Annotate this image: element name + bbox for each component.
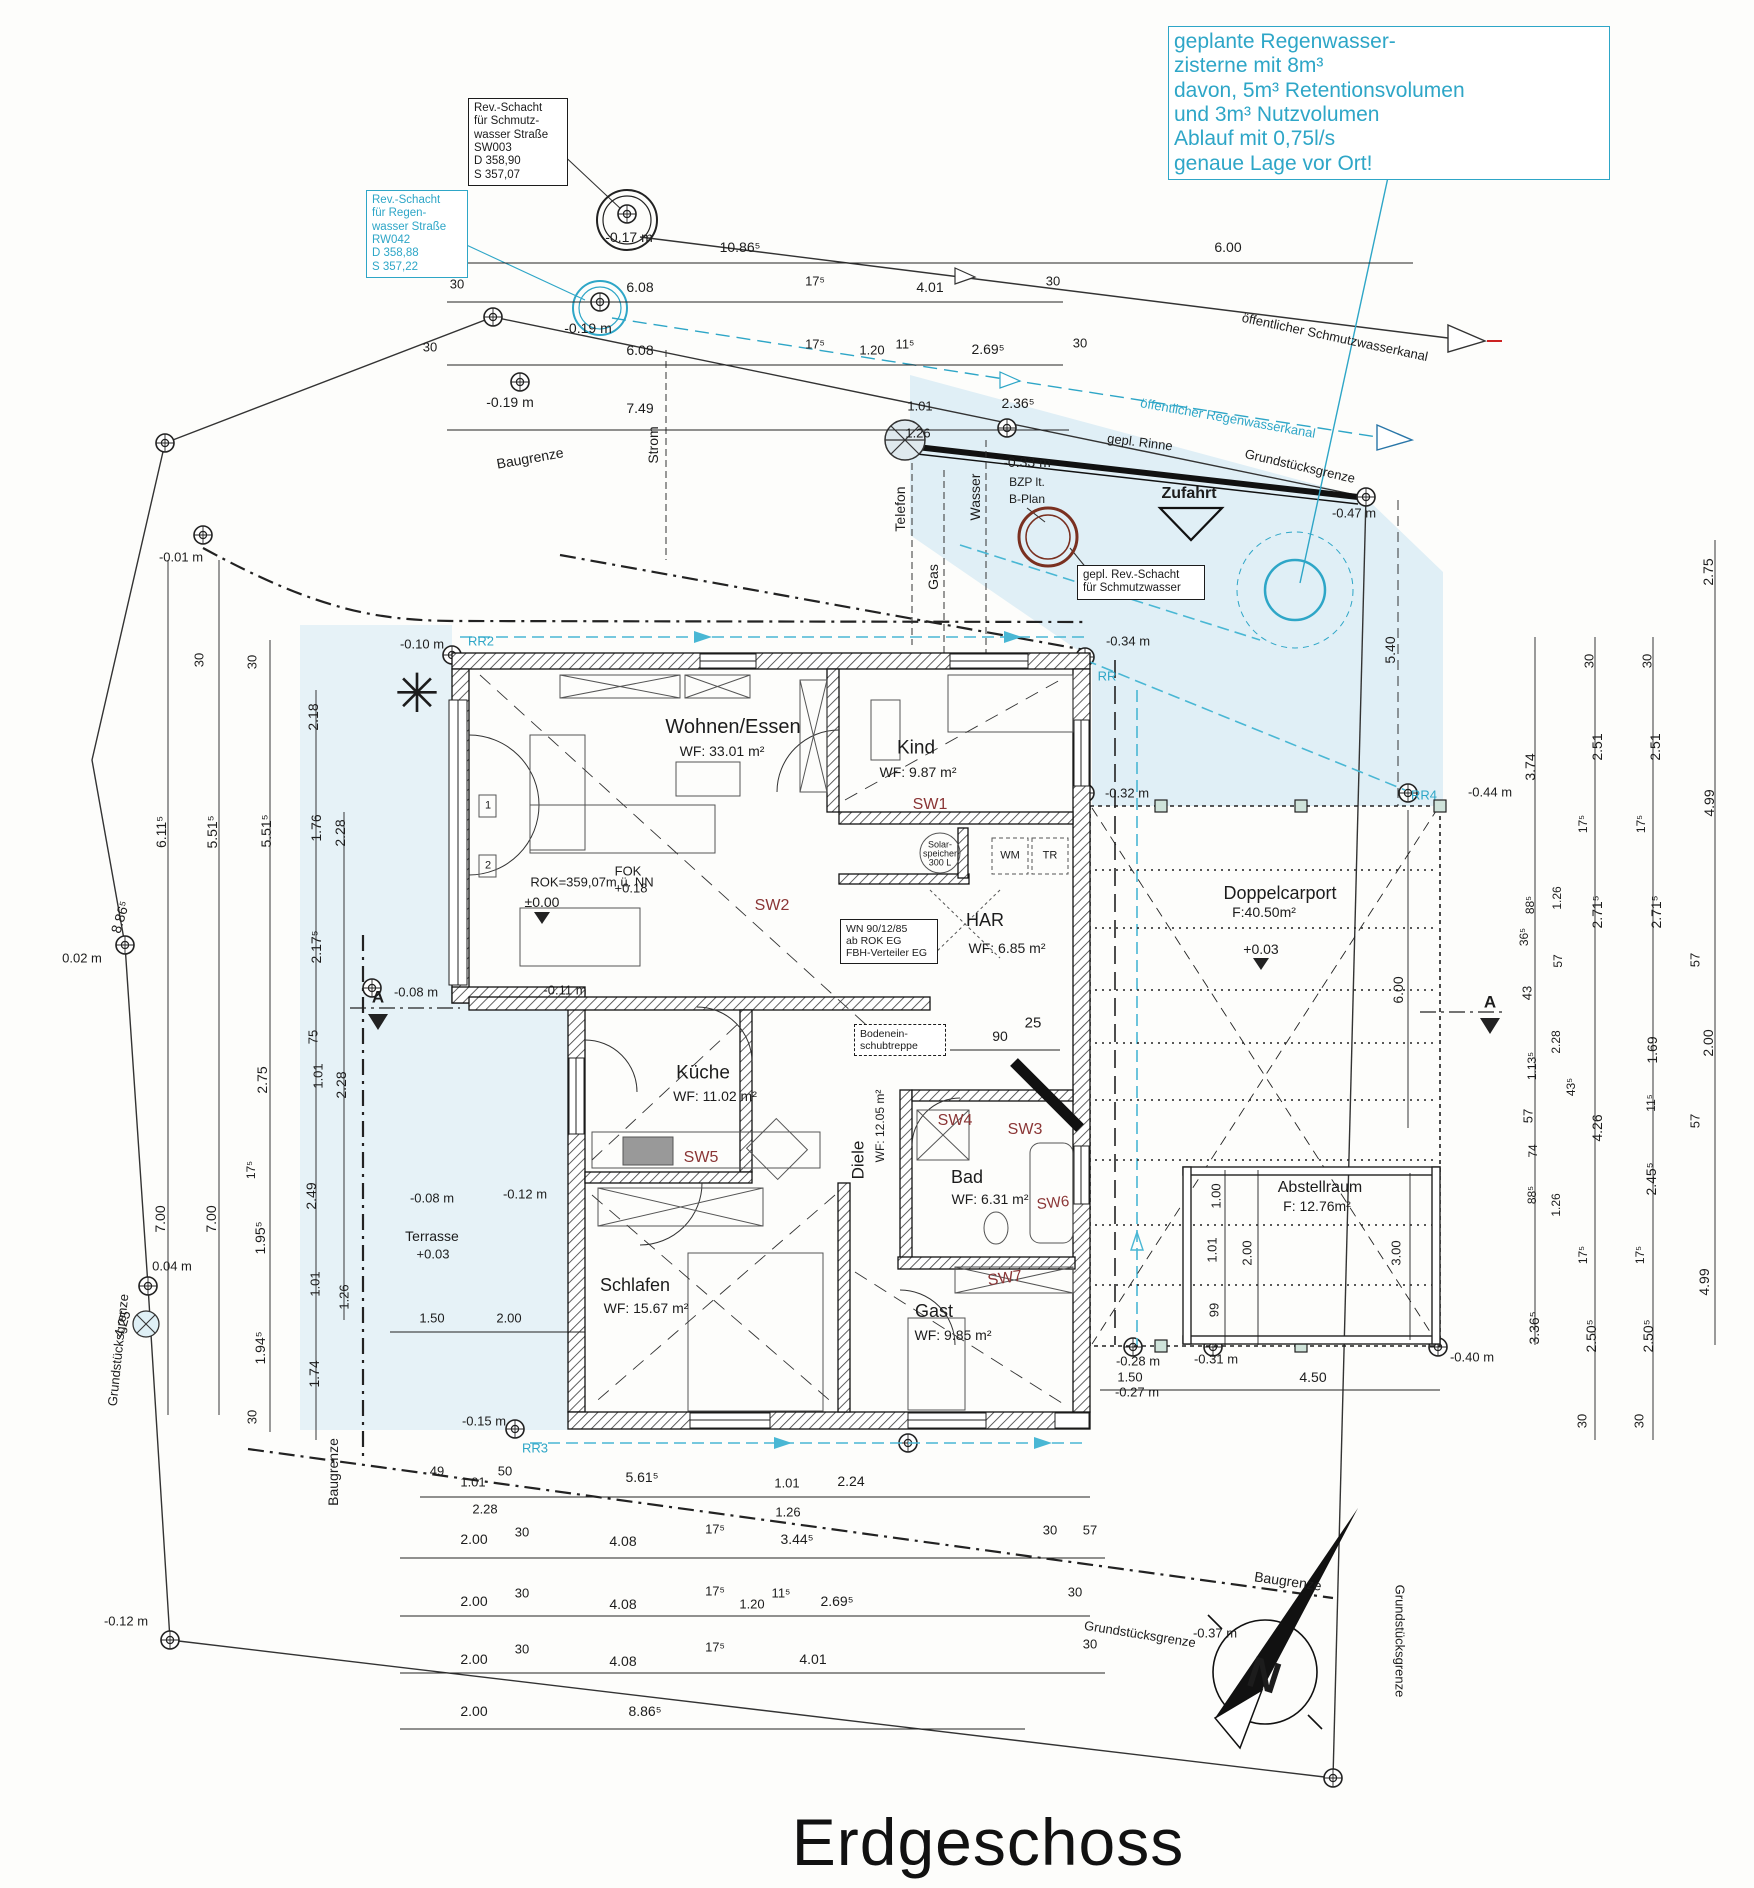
annotation: 30 xyxy=(515,1643,529,1656)
annotation: 2.69⁵ xyxy=(971,342,1004,356)
sw5: SW5 xyxy=(684,1150,719,1166)
annotation: -0.08 m xyxy=(394,986,438,999)
annotation: 2.24 xyxy=(837,1474,864,1488)
annotation: 2.28 xyxy=(333,819,347,846)
annotation: 8.86⁵ xyxy=(628,1704,661,1718)
text-box-line: ab ROK EG xyxy=(846,935,932,947)
regenwasserkanal-label: öffentlicher Regenwasserkanal xyxy=(1139,396,1316,440)
north-letter: N xyxy=(1242,1650,1286,1702)
sw3: SW3 xyxy=(1008,1122,1043,1138)
annotation: -0.11 m xyxy=(543,984,586,997)
annotation: 17⁵ xyxy=(705,1585,725,1598)
annotation: 4.01 xyxy=(799,1652,826,1666)
annotation: 2.49 xyxy=(304,1182,318,1209)
annotation: 30 xyxy=(1073,337,1087,350)
annotation: -0.44 m xyxy=(1468,786,1512,799)
annotation: 1.01 xyxy=(312,1063,325,1088)
shaft-box-schmutzwasser: Rev.-Schachtfür Schmutz-wasser StraßeSW0… xyxy=(468,98,568,186)
text-box-line: Ablauf mit 0,75l/s xyxy=(1174,127,1604,151)
annotation: 5.51⁵ xyxy=(259,814,273,847)
annotation: 17⁵ xyxy=(1577,815,1589,833)
text-box-line: für Regen- xyxy=(372,207,462,220)
text-box-line: RW042 xyxy=(372,234,462,247)
rr4-label: RR4 xyxy=(1411,789,1437,802)
annotation: 30 xyxy=(246,1410,259,1424)
rr3-label: RR3 xyxy=(522,1442,548,1455)
grenze-east: Grundstücksgrenze xyxy=(1394,1585,1407,1698)
baugrenze-west: Baugrenze xyxy=(326,1438,340,1506)
text-box-line: Rev.-Schacht xyxy=(474,102,562,115)
annotation: 74 xyxy=(1527,1144,1539,1157)
annotation: 17⁵ xyxy=(1635,815,1647,833)
annotation: 30 xyxy=(193,653,206,667)
rr-label: RR xyxy=(1098,670,1117,683)
drawing-title: Erdgeschoss xyxy=(792,1804,1185,1880)
room-name-kind: Kind xyxy=(897,739,935,758)
annotation: 6.08 xyxy=(626,280,653,294)
zufahrt-label: Zufahrt xyxy=(1161,486,1216,502)
annotation: -0.08 m xyxy=(410,1192,454,1205)
text-box-line: für Schmutzwasser xyxy=(1083,582,1199,595)
text-box-line: Rev.-Schacht xyxy=(372,194,462,207)
shaft-box-regenwasser: Rev.-Schachtfür Regen-wasser StraßeRW042… xyxy=(366,190,468,278)
annotation: -0.15 m xyxy=(462,1415,506,1428)
annotation: 2.00 xyxy=(496,1312,521,1325)
annotation: 17⁵ xyxy=(805,275,825,288)
annotation: 7.00 xyxy=(153,1205,167,1232)
room-area-wohnen-essen: WF: 33.01 m² xyxy=(680,744,765,758)
text-box-line: für Schmutz- xyxy=(474,115,562,128)
level-019b: -0.19 m xyxy=(486,395,533,409)
annotation: 11⁵ xyxy=(772,1587,791,1600)
level-004: 0.04 m xyxy=(152,1260,192,1273)
annotation: -0.31 m xyxy=(1194,1353,1238,1366)
room-area-abstellraum: F: 12.76m² xyxy=(1283,1199,1351,1213)
annotation: 2.71⁵ xyxy=(1590,895,1604,928)
annotation: BZP lt. xyxy=(1009,476,1045,488)
annotation: 11⁵ xyxy=(896,338,915,351)
level-017: -0.17 m xyxy=(605,230,652,244)
room-name-kueche: Küche xyxy=(676,1064,730,1083)
annotation: 88⁵ xyxy=(1526,1186,1538,1204)
annotation: 30 xyxy=(1633,1414,1646,1428)
annotation: 49 xyxy=(430,1465,444,1478)
annotation: 1.50 xyxy=(419,1312,444,1325)
annotation: 17⁵ xyxy=(705,1641,725,1654)
plant-symbol: ✳ xyxy=(394,667,439,721)
annotation: 50 xyxy=(498,1465,512,1478)
annotation: 57 xyxy=(1522,1109,1535,1123)
annotation: B-Plan xyxy=(1009,493,1045,505)
annotation: 2.51 xyxy=(1590,733,1604,760)
room-area-bad: WF: 6.31 m² xyxy=(951,1192,1028,1206)
annotation: 4.08 xyxy=(609,1597,636,1611)
annotation: 30 xyxy=(1576,1414,1589,1428)
annotation: 1.26 xyxy=(338,1284,351,1309)
annotation: 1.01 xyxy=(1206,1237,1219,1262)
text-box-line: schubtreppe xyxy=(860,1040,940,1052)
annotation: 2.00 xyxy=(1701,1029,1715,1056)
annotation: 300 L xyxy=(929,859,952,868)
sw4: SW4 xyxy=(938,1113,973,1129)
annotation: 1.01 xyxy=(309,1271,322,1296)
annotation: 2.50⁵ xyxy=(1641,1319,1655,1352)
room-area-kind: WF: 9.87 m² xyxy=(879,765,956,779)
annotation: -0.10 m xyxy=(400,638,444,651)
annotation: 57 xyxy=(1689,1114,1702,1128)
annotation: 4.50 xyxy=(1299,1370,1326,1384)
text-box-line: geplante Regenwasser- xyxy=(1174,30,1604,54)
annotation: 5.40 xyxy=(1383,636,1397,663)
annotation: 2.00 xyxy=(460,1594,487,1608)
room-name-diele: Diele xyxy=(850,1141,867,1180)
annotation: 30 xyxy=(1046,275,1060,288)
annotation: 4.01 xyxy=(916,280,943,294)
annotation: 2.36⁵ xyxy=(1001,396,1034,410)
text-box-line: SW003 xyxy=(474,142,562,155)
annotation: -0.40 m xyxy=(1450,1351,1494,1364)
baugrenze-bottom: Baugrenze xyxy=(1253,1569,1322,1592)
room-area-terrasse: +0.03 xyxy=(417,1248,450,1261)
annotation: 30 xyxy=(1583,654,1596,668)
annotation: 2.28 xyxy=(334,1071,348,1098)
utility-telefon: Telefon xyxy=(893,486,907,531)
annotation: -0.34 m xyxy=(1106,635,1150,648)
annotation: 4.26 xyxy=(1590,1114,1604,1141)
annotation: 25 xyxy=(1025,1016,1042,1031)
annotation: 1.01 xyxy=(907,400,932,413)
text-box-line: S 357,07 xyxy=(474,169,562,182)
annotation: 30 xyxy=(515,1526,529,1539)
annotation: 30 xyxy=(1068,1586,1082,1599)
annotation: 99 xyxy=(1208,1303,1221,1317)
annotation: 2.69⁵ xyxy=(820,1594,853,1608)
annotation: 3.44⁵ xyxy=(780,1532,813,1546)
annotation: 1.26 xyxy=(775,1506,800,1519)
annotation: 2.45⁵ xyxy=(1644,1162,1658,1195)
level-019a: -0.19 m xyxy=(564,321,611,335)
annotation: 17⁵ xyxy=(1577,1246,1589,1264)
annotation: +0.03 xyxy=(1243,942,1278,956)
annotation: 1 xyxy=(485,801,491,812)
fbh-verteiler-box: WN 90/12/85ab ROK EGFBH-Verteiler EG xyxy=(840,919,938,964)
annotation: 30 xyxy=(450,278,464,291)
annotation: 1.50 xyxy=(1117,1371,1142,1384)
annotation: 1.01 xyxy=(460,1476,485,1489)
text-box-line: Bodenein- xyxy=(860,1028,940,1040)
utility-wasser: Wasser xyxy=(968,474,982,521)
sw2: SW2 xyxy=(755,898,790,914)
annotation: 3.00 xyxy=(1390,1240,1403,1265)
annotation: 75 xyxy=(307,1030,320,1044)
annotation: 57 xyxy=(1552,954,1564,967)
room-area-har: WF: 6.85 m² xyxy=(968,941,1045,955)
annotation: 4.99 xyxy=(1697,1268,1711,1295)
annotation: 1.20 xyxy=(739,1598,764,1611)
annotation: 2.00 xyxy=(1241,1240,1254,1265)
regenwasser-note-box: geplante Regenwasser-zisterne mit 8m³dav… xyxy=(1168,26,1610,180)
annotation: 1.00 xyxy=(1210,1183,1223,1208)
annotation: 1.76 xyxy=(309,814,323,841)
floor-plan-sheet: -0.17 m-0.19 m-0.19 m-0.01 m0.02 m0.04 m… xyxy=(0,0,1754,1888)
annotation: 1.26 xyxy=(1550,1193,1562,1216)
text-box-line: D 358,90 xyxy=(474,155,562,168)
annotation: 2.51 xyxy=(1648,733,1662,760)
text-box-line: wasser Straße xyxy=(372,221,462,234)
annotation: 1.69 xyxy=(1645,1036,1659,1063)
annotation: TR xyxy=(1043,851,1058,862)
room-name-terrasse: Terrasse xyxy=(405,1229,459,1243)
annotation: 88⁵ xyxy=(1524,896,1536,914)
annotation: 8.86⁵ xyxy=(108,899,131,935)
annotation: 2.28 xyxy=(472,1503,497,1516)
annotation: -0.32 m xyxy=(1105,787,1149,800)
annotation: 2 xyxy=(485,861,491,872)
utility-strom: Strom xyxy=(646,426,660,463)
annotation: 2.75 xyxy=(1701,558,1715,585)
level-001: -0.01 m xyxy=(159,551,203,564)
annotation: -0.47 m xyxy=(1332,507,1376,520)
annotation: -0.27 m xyxy=(1115,1386,1159,1399)
text-box-line: davon, 5m³ Retentionsvolumen xyxy=(1174,79,1604,103)
room-area-diele: WF: 12.05 m² xyxy=(874,1090,886,1163)
annotation: 2.00 xyxy=(460,1532,487,1546)
level-033: -0.33 m xyxy=(1003,455,1050,469)
room-area-gast: WF: 9.85 m² xyxy=(914,1328,991,1342)
level-012a: -0.12 m xyxy=(104,1615,148,1628)
annotation: 43⁵ xyxy=(1565,1078,1577,1096)
room-name-wohnen-essen: Wohnen/Essen xyxy=(665,717,800,737)
gepl-schacht-box: gepl. Rev.-Schachtfür Schmutzwasser xyxy=(1077,565,1205,600)
annotation: 1.94⁵ xyxy=(253,1331,267,1364)
annotation: 4.08 xyxy=(609,1654,636,1668)
annotation: 30 xyxy=(423,341,437,354)
text-box-line: S 357,22 xyxy=(372,261,462,274)
annotation: 3.36⁵ xyxy=(1527,1311,1541,1344)
annotation: 2.50⁵ xyxy=(1584,1319,1598,1352)
baugrenze-top: Baugrenze xyxy=(495,445,564,471)
grenze-bottom: Grundstücksgrenze xyxy=(1083,1619,1196,1649)
annotation: 17⁵ xyxy=(1634,1246,1646,1264)
sw1: SW1 xyxy=(913,797,948,813)
annotation: 90 xyxy=(992,1029,1008,1043)
annotation: 4.99 xyxy=(1702,789,1716,816)
annotation: 3.74 xyxy=(1523,753,1537,780)
annotation: 30 xyxy=(1043,1524,1057,1537)
room-name-har: HAR xyxy=(966,911,1004,929)
annotation: 5.61⁵ xyxy=(625,1470,658,1484)
annotation: 6.11⁵ xyxy=(154,816,168,848)
annotation: 2.71⁵ xyxy=(1649,895,1663,928)
annotation: 2.28 xyxy=(1550,1030,1562,1053)
text-box-line: und 3m³ Nutzvolumen xyxy=(1174,103,1604,127)
text-box-line: genaue Lage vor Ort! xyxy=(1174,152,1604,176)
section-a-left: A xyxy=(372,989,384,1006)
text-box-line: zisterne mit 8m³ xyxy=(1174,54,1604,78)
text-box-line: wasser Straße xyxy=(474,129,562,142)
annotation: 1.01 xyxy=(774,1477,799,1490)
annotation-layer: -0.17 m-0.19 m-0.19 m-0.01 m0.02 m0.04 m… xyxy=(0,0,1754,1888)
room-name-abstellraum: Abstellraum xyxy=(1278,1180,1362,1196)
section-a-right: A xyxy=(1484,994,1496,1011)
room-name-schlafen: Schlafen xyxy=(600,1276,670,1294)
annotation: 17⁵ xyxy=(805,338,825,351)
annotation: 17⁵ xyxy=(245,1161,257,1179)
annotation: 7.49 xyxy=(626,401,653,415)
grenze-top: Grundstücksgrenze xyxy=(1244,447,1357,485)
annotation: 1.95⁵ xyxy=(253,1221,267,1254)
annotation: 10.86⁵ xyxy=(720,240,761,254)
annotation: 2.00 xyxy=(460,1704,487,1718)
annotation: 30 xyxy=(1083,1638,1097,1651)
room-name-bad: Bad xyxy=(951,1168,983,1186)
annotation: 7.00 xyxy=(204,1205,218,1232)
utility-gas: Gas xyxy=(926,564,940,590)
rinne-label: gepl. Rinne xyxy=(1107,432,1174,453)
annotation: -0.37 m xyxy=(1193,1627,1237,1640)
room-name-doppelcarport: Doppelcarport xyxy=(1223,884,1336,902)
annotation: 30 xyxy=(515,1587,529,1600)
annotation: 1.26 xyxy=(905,427,930,440)
annotation: WM xyxy=(1000,851,1020,862)
room-area-kueche: WF: 11.02 m² xyxy=(673,1089,757,1103)
annotation: 2.00 xyxy=(460,1652,487,1666)
room-name-gast: Gast xyxy=(915,1302,953,1320)
annotation: 30 xyxy=(1641,654,1654,668)
annotation: 2.18 xyxy=(306,703,320,730)
annotation: 5.51⁵ xyxy=(205,815,219,848)
annotation: 30 xyxy=(246,655,259,669)
text-box-line: WN 90/12/85 xyxy=(846,923,932,935)
annotation: 43 xyxy=(1521,986,1534,1000)
annotation: 17⁵ xyxy=(705,1523,725,1536)
annotation: -0.12 m xyxy=(503,1188,547,1201)
level-002: 0.02 m xyxy=(62,952,102,965)
room-area-doppelcarport: F:40.50m² xyxy=(1232,905,1296,919)
text-box-line: gepl. Rev.-Schacht xyxy=(1083,569,1199,582)
annotation: 1.74 xyxy=(307,1360,321,1387)
annotation: 4.08 xyxy=(609,1534,636,1548)
annotation: 2.75 xyxy=(255,1066,269,1093)
annotation: -0.28 m xyxy=(1116,1355,1160,1368)
rok-label: ROK=359,07m ü. NN xyxy=(530,876,653,889)
room-area-schlafen: WF: 15.67 m² xyxy=(604,1301,689,1315)
annotation: 11⁵ xyxy=(1645,1094,1657,1111)
annotation: 6.00 xyxy=(1214,240,1241,254)
annotation: 36⁵ xyxy=(1518,928,1530,946)
bodeneinschubtreppe-box: Bodenein-schubtreppe xyxy=(854,1024,946,1056)
rr2-label: RR2 xyxy=(468,635,494,648)
sw7: SW7 xyxy=(987,1269,1024,1290)
sw6: SW6 xyxy=(1036,1194,1070,1212)
annotation: 6.08 xyxy=(626,343,653,357)
annotation: ±0.00 xyxy=(525,895,560,909)
annotation: 1.13⁵ xyxy=(1526,1052,1538,1080)
annotation: 57 xyxy=(1083,1524,1097,1537)
annotation: 1.26 xyxy=(1551,886,1563,909)
annotation: 2.17⁵ xyxy=(309,930,323,963)
text-box-line: FBH-Verteiler EG xyxy=(846,947,932,959)
annotation: 6.00 xyxy=(1391,976,1405,1003)
schmutzwasserkanal-label: öffentlicher Schmutzwasserkanal xyxy=(1241,311,1429,363)
annotation: 1.20 xyxy=(859,344,884,357)
text-box-line: D 358,88 xyxy=(372,247,462,260)
annotation: 57 xyxy=(1689,953,1702,967)
